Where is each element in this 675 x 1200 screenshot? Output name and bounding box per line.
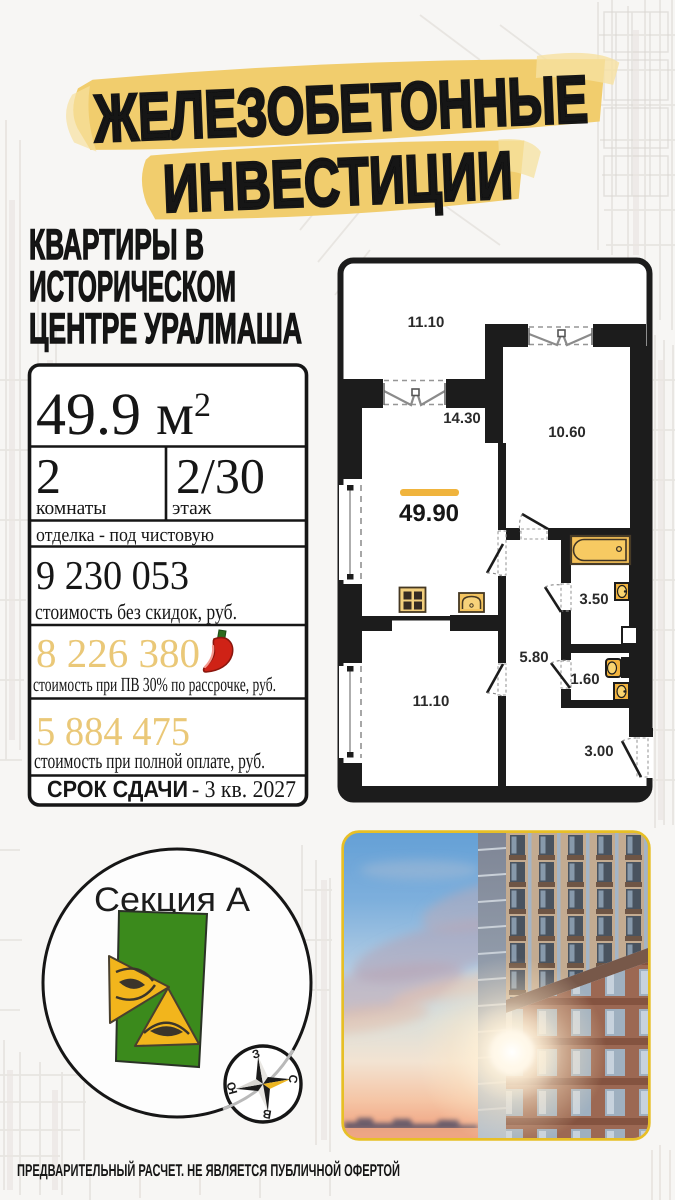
svg-text:ЦЕНТРЕ УРАЛМАША: ЦЕНТРЕ УРАЛМАША [29, 305, 302, 353]
svg-text:11.10: 11.10 [408, 314, 445, 331]
svg-text:стоимость при полной оплате, р: стоимость при полной оплате, руб. [34, 748, 265, 773]
svg-text:9 230 053: 9 230 053 [36, 552, 189, 598]
svg-text:5.80: 5.80 [519, 649, 548, 666]
svg-text:3.50: 3.50 [579, 591, 608, 608]
svg-text:14.30: 14.30 [443, 410, 481, 427]
svg-text:ИСТОРИЧЕСКОМ: ИСТОРИЧЕСКОМ [29, 263, 236, 311]
svg-text:2/30: 2/30 [176, 448, 265, 504]
svg-text:1.60: 1.60 [570, 671, 599, 688]
svg-text:49.90: 49.90 [399, 500, 459, 527]
svg-text:10.60: 10.60 [548, 424, 586, 441]
svg-text:2: 2 [36, 448, 61, 504]
svg-text:комнаты: комнаты [36, 498, 106, 519]
svg-text:3.00: 3.00 [584, 743, 613, 760]
svg-text:49.9 м2: 49.9 м2 [36, 381, 211, 447]
svg-text:11.10: 11.10 [413, 693, 450, 710]
svg-text:отделка - под чистовую: отделка - под чистовую [36, 525, 214, 546]
svg-text:КВАРТИРЫ В: КВАРТИРЫ В [29, 221, 204, 269]
svg-text:ПРЕДВАРИТЕЛЬНЫЙ РАСЧЕТ. НЕ ЯВЛ: ПРЕДВАРИТЕЛЬНЫЙ РАСЧЕТ. НЕ ЯВЛЯЕТСЯ ПУБЛ… [17, 1160, 400, 1180]
svg-text:СРОК СДАЧИ: СРОК СДАЧИ [47, 776, 188, 802]
svg-text:- 3 кв. 2027: - 3 кв. 2027 [192, 777, 296, 803]
svg-text:ИНВЕСТИЦИИ: ИНВЕСТИЦИИ [162, 138, 515, 227]
svg-text:8 226 380: 8 226 380 [36, 630, 200, 676]
svg-text:этаж: этаж [172, 498, 212, 519]
svg-text:стоимость без скидок, руб.: стоимость без скидок, руб. [35, 599, 237, 624]
svg-text:стоимость при ПВ 30% по рассро: стоимость при ПВ 30% по рассрочке, руб. [33, 674, 276, 696]
